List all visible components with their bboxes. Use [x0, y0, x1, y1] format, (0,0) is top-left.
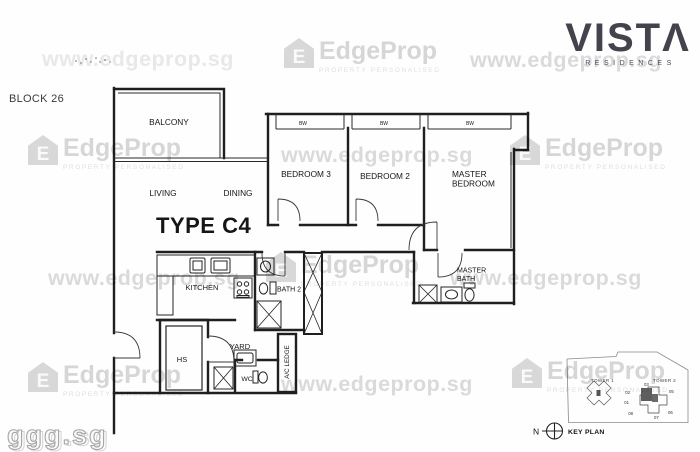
unit-number: 03 [644, 382, 649, 387]
vista-logo-text: VISTΛ [558, 18, 698, 58]
ac-ledge-label: A/C LEDGE [284, 345, 291, 379]
bath2-label: BATH 2 [277, 287, 301, 294]
block-number-label: BLOCK 26 [9, 93, 64, 105]
kitchen-label: KITCHEN [186, 283, 219, 292]
keyplan: TOWER 1 TOWER 2 03 02 01 08 05 06 07 N K… [533, 352, 688, 439]
tower1-label: TOWER 1 [591, 378, 614, 383]
fixtures [157, 253, 475, 390]
north-label: N [533, 427, 539, 437]
master-bath-label-2: BATH [457, 276, 475, 283]
keyplan-labels: TOWER 1 TOWER 2 [591, 378, 676, 383]
keyplan-title: KEY PLAN [568, 429, 605, 436]
unit-number: 07 [654, 415, 659, 420]
corner-watermark-text: ggg.sg [7, 420, 108, 450]
master-bedroom-label-1: MASTER [452, 169, 487, 179]
unit-walls [114, 88, 528, 433]
vista-logo-subtext: RESIDENCES [558, 60, 698, 67]
scan-marks [75, 57, 111, 64]
bay-window-label-1: BW [299, 121, 307, 127]
dining-label: DINING [223, 188, 252, 198]
bay-window-label-2: BW [380, 121, 388, 127]
room-labels: BALCONY LIVING DINING BEDROOM 3 BEDROOM … [149, 117, 495, 383]
living-label: LIVING [149, 188, 176, 198]
tower2-footprint [640, 387, 667, 413]
bedroom2-label: BEDROOM 2 [360, 171, 410, 181]
north-compass-icon [542, 423, 563, 439]
unit-number: 06 [668, 410, 673, 415]
yard-label: YARD [230, 342, 251, 351]
unit-number: 08 [628, 411, 633, 416]
balcony-label: BALCONY [149, 117, 189, 127]
highlighted-unit [641, 388, 652, 401]
bedroom3-label: BEDROOM 3 [281, 169, 331, 179]
bay-window-label-3: BW [466, 121, 474, 127]
unit-type-label: TYPE C4 [156, 213, 251, 238]
unit-number: 05 [669, 389, 674, 394]
wc-label: WC [241, 376, 252, 383]
hs-label: HS [177, 355, 187, 364]
master-bedroom-label-2: BEDROOM [452, 179, 495, 189]
unit-number: 02 [625, 390, 630, 395]
tower2-label: TOWER 2 [653, 378, 676, 383]
master-bath-label-1: MASTER [457, 268, 486, 275]
floorplan-page: BALCONY LIVING DINING BEDROOM 3 BEDROOM … [0, 0, 700, 452]
unit-number: 01 [624, 400, 629, 405]
vista-residences-logo: VISTΛ RESIDENCES [558, 18, 698, 67]
corner-watermark: ggg.sg ggg.sg [7, 420, 110, 452]
floorplan-svg: BALCONY LIVING DINING BEDROOM 3 BEDROOM … [0, 0, 700, 452]
